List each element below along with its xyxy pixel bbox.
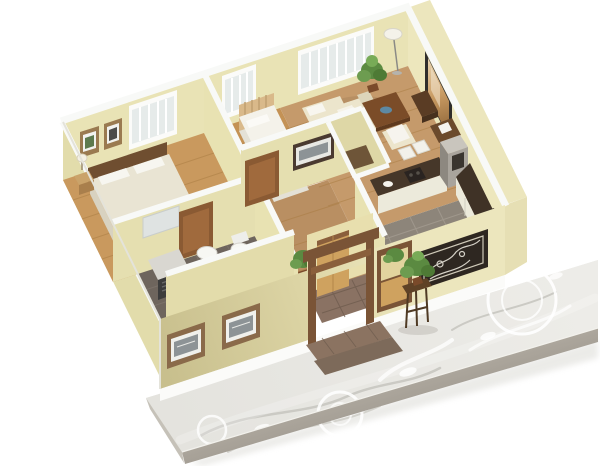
lamp-base [392, 71, 402, 75]
plate [383, 181, 393, 187]
render-canvas [0, 0, 600, 466]
lamp-shade [384, 29, 402, 40]
east-corner-face [505, 197, 527, 275]
stand-shadow [398, 325, 438, 335]
blue-bowl [380, 107, 392, 114]
floor-plan-render [0, 0, 600, 466]
